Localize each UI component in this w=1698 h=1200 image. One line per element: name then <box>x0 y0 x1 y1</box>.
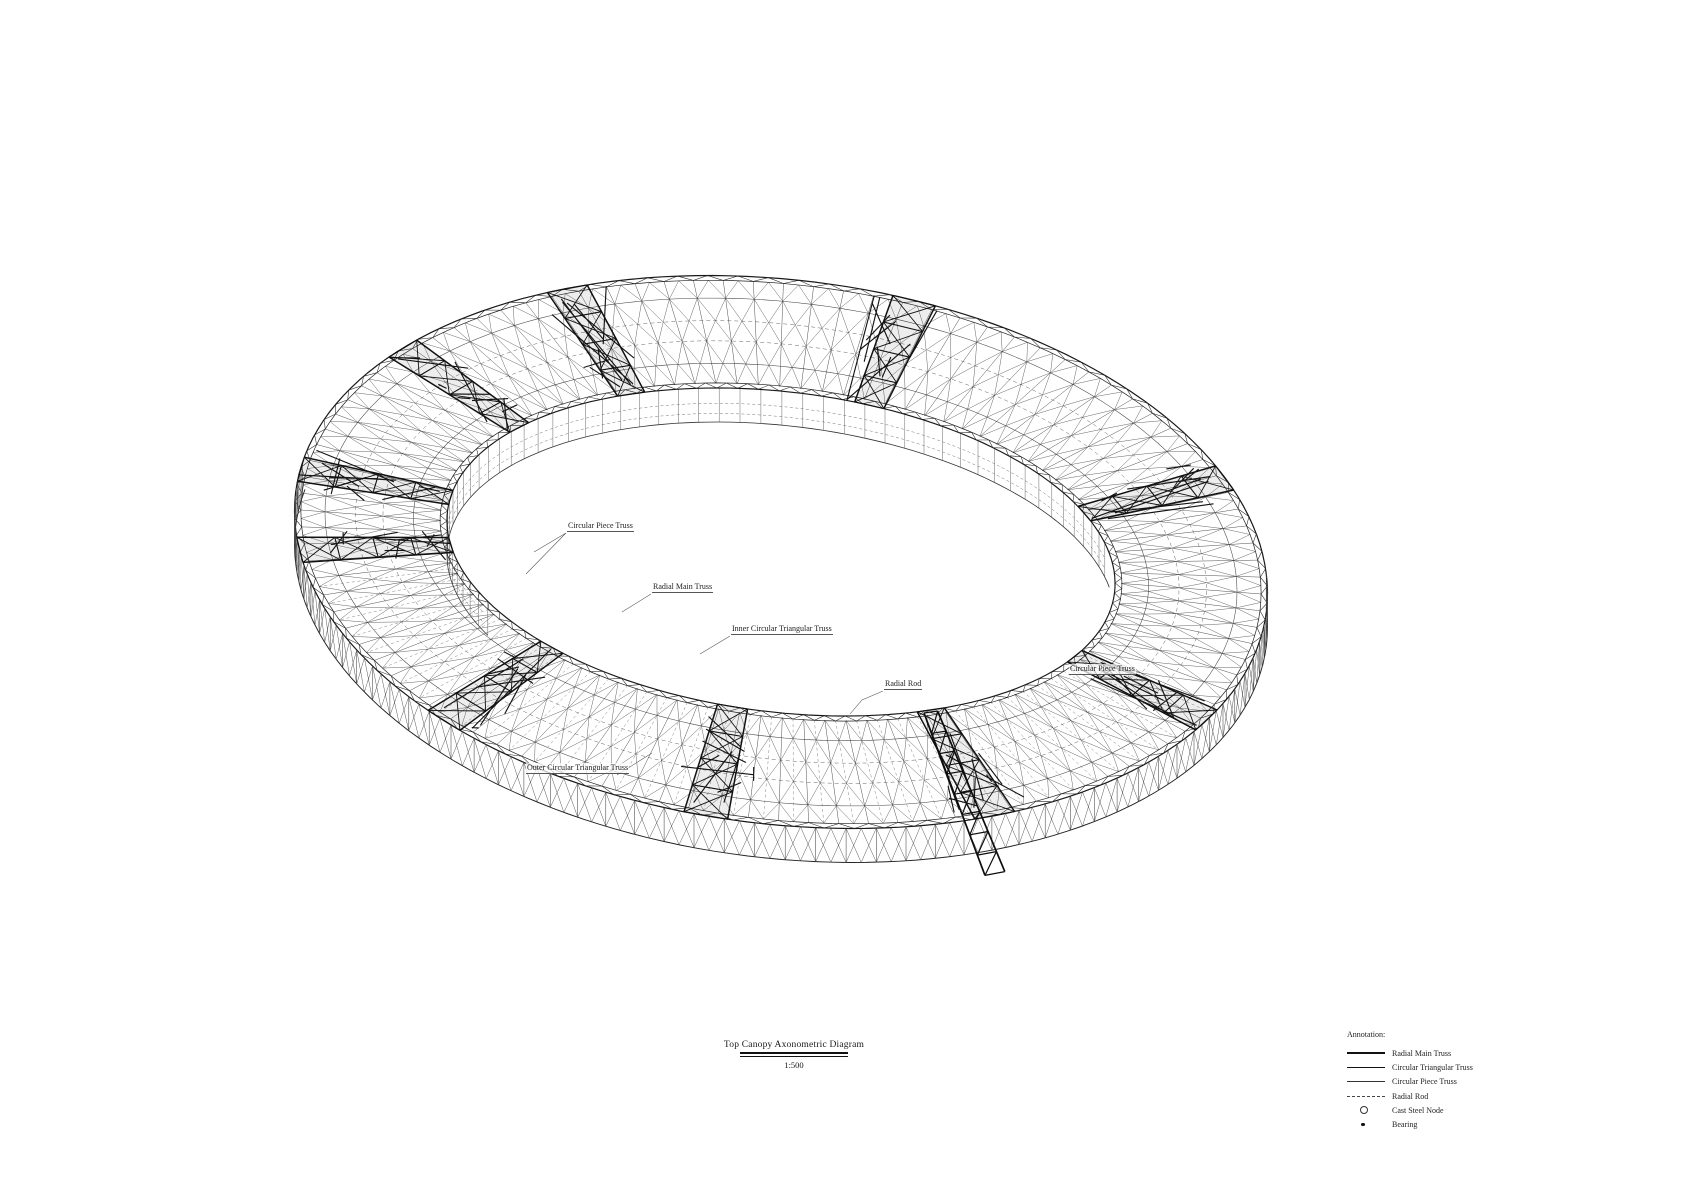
dashed-line-icon <box>1347 1096 1385 1097</box>
inner-edge-truss <box>440 383 1122 721</box>
title-rule <box>740 1052 848 1057</box>
truss-wireframe-drawing <box>0 0 1698 1200</box>
legend-row-radial-rod: Radial Rod <box>1347 1089 1473 1103</box>
callout-leader-lines <box>526 533 1164 775</box>
callout-label: Radial Main Truss <box>653 582 712 591</box>
drawing-sheet: { "title": { "text": "Top Canopy Axonome… <box>0 0 1698 1200</box>
legend-label: Radial Main Truss <box>1392 1049 1451 1058</box>
thin-line-icon <box>1347 1081 1385 1082</box>
inner-side-wall <box>447 388 1109 635</box>
callout-inner-circular-triangular-truss: Inner Circular Triangular Truss <box>731 624 833 635</box>
callout-label: Circular Piece Truss <box>568 521 633 530</box>
legend-label: Circular Triangular Truss <box>1392 1063 1473 1072</box>
legend-row-radial-main-truss: Radial Main Truss <box>1347 1046 1473 1060</box>
callout-label: Outer Circular Triangular Truss <box>527 763 628 772</box>
legend-row-bearing: Bearing <box>1347 1117 1473 1131</box>
legend: Annotation: Radial Main Truss Circular T… <box>1347 1030 1473 1132</box>
thick-line-icon <box>1347 1052 1385 1054</box>
legend-label: Circular Piece Truss <box>1392 1077 1457 1086</box>
callout-label: Circular Piece Truss <box>1070 664 1135 673</box>
medium-line-icon <box>1347 1067 1385 1068</box>
callout-label: Inner Circular Triangular Truss <box>732 624 832 633</box>
radial-main-truss-clusters <box>297 285 1234 876</box>
drawing-title: Top Canopy Axonometric Diagram <box>694 1040 894 1050</box>
callout-outer-circular-triangular-truss: Outer Circular Triangular Truss <box>526 763 629 774</box>
callout-label: Radial Rod <box>885 679 921 688</box>
filled-dot-icon <box>1347 1123 1385 1127</box>
legend-label: Radial Rod <box>1392 1092 1428 1101</box>
legend-label: Cast Steel Node <box>1392 1106 1444 1115</box>
legend-label: Bearing <box>1392 1120 1417 1129</box>
callout-circular-piece-truss-left: Circular Piece Truss <box>567 521 634 532</box>
callout-radial-rod: Radial Rod <box>884 679 922 690</box>
legend-row-circular-triangular-truss: Circular Triangular Truss <box>1347 1060 1473 1074</box>
legend-row-circular-piece-truss: Circular Piece Truss <box>1347 1075 1473 1089</box>
open-circle-icon <box>1347 1106 1385 1114</box>
callout-radial-main-truss: Radial Main Truss <box>652 582 713 593</box>
legend-row-cast-steel-node: Cast Steel Node <box>1347 1103 1473 1117</box>
drawing-scale: 1:500 <box>694 1060 894 1070</box>
title-block: Top Canopy Axonometric Diagram 1:500 <box>694 1040 894 1070</box>
callout-circular-piece-truss-right: Circular Piece Truss <box>1069 664 1136 675</box>
legend-heading: Annotation: <box>1347 1030 1473 1039</box>
